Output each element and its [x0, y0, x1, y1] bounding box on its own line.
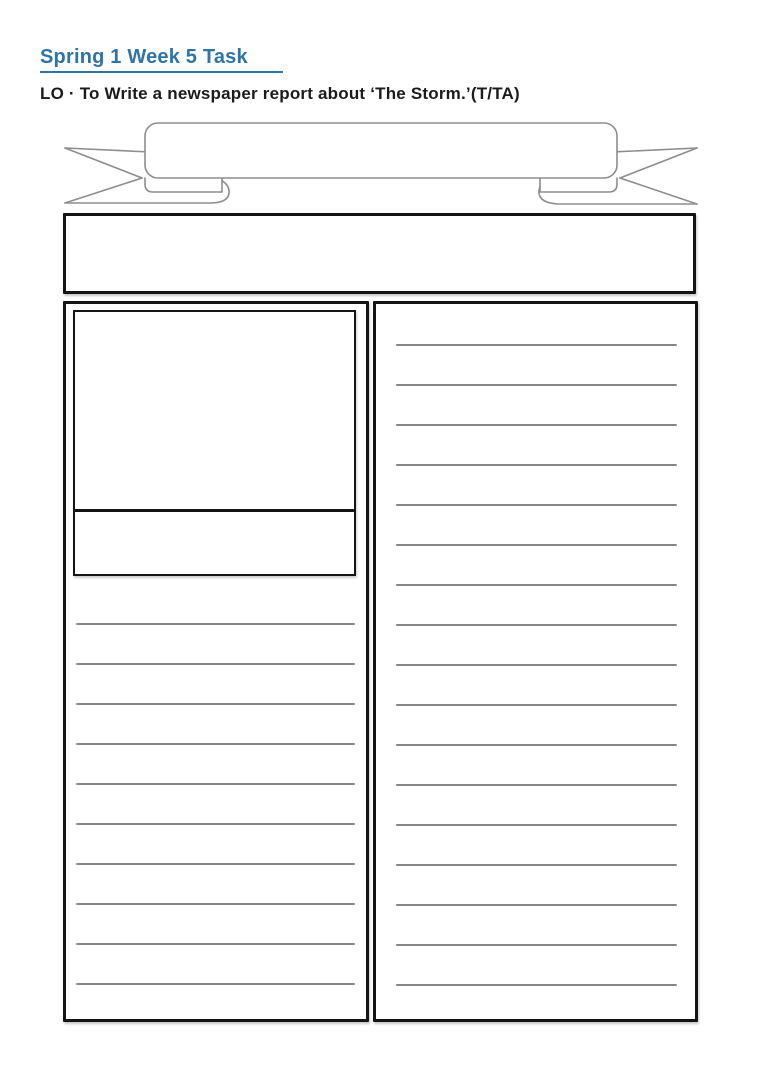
ruled-line: [396, 944, 677, 946]
ruled-line: [396, 384, 677, 386]
banner-left-scroll-under: [65, 178, 229, 203]
ruled-line: [396, 744, 677, 746]
ruled-line: [396, 504, 677, 506]
ruled-line: [396, 664, 677, 666]
banner-right-scroll-tab: [540, 178, 617, 192]
right-column-box: [373, 301, 698, 1022]
ruled-line: [396, 704, 677, 706]
ruled-line: [76, 943, 355, 945]
ribbon-banner-shape: [0, 0, 768, 220]
ruled-line: [396, 544, 677, 546]
ruled-line: [396, 624, 677, 626]
right-ruled-lines: [376, 304, 695, 1019]
ruled-line: [76, 703, 355, 705]
ruled-line: [396, 904, 677, 906]
ruled-line: [396, 784, 677, 786]
banner-right-scroll-under: [539, 178, 697, 204]
ruled-line: [76, 743, 355, 745]
ruled-line: [396, 824, 677, 826]
banner-body: [145, 123, 617, 178]
learning-objective: LO · To Write a newspaper report about ‘…: [40, 84, 520, 104]
headline-box: [63, 213, 696, 294]
left-ruled-lines: [66, 304, 366, 1019]
ruled-line: [396, 984, 677, 986]
banner-left-scroll-tab: [145, 178, 222, 192]
worksheet-page: Spring 1 Week 5 Task LO · To Write a new…: [0, 0, 768, 1086]
ruled-line: [76, 823, 355, 825]
left-column-box: [63, 301, 369, 1022]
ruled-line: [76, 863, 355, 865]
ruled-line: [396, 864, 677, 866]
ruled-line: [396, 584, 677, 586]
ruled-line: [76, 983, 355, 985]
ruled-line: [76, 663, 355, 665]
ruled-line: [76, 623, 355, 625]
ruled-line: [396, 464, 677, 466]
banner-left-tail: [65, 148, 150, 203]
ruled-line: [396, 424, 677, 426]
page-title: Spring 1 Week 5 Task: [40, 46, 283, 73]
banner-right-tail: [612, 148, 697, 204]
ruled-line: [76, 783, 355, 785]
ruled-line: [76, 903, 355, 905]
ruled-line: [396, 344, 677, 346]
